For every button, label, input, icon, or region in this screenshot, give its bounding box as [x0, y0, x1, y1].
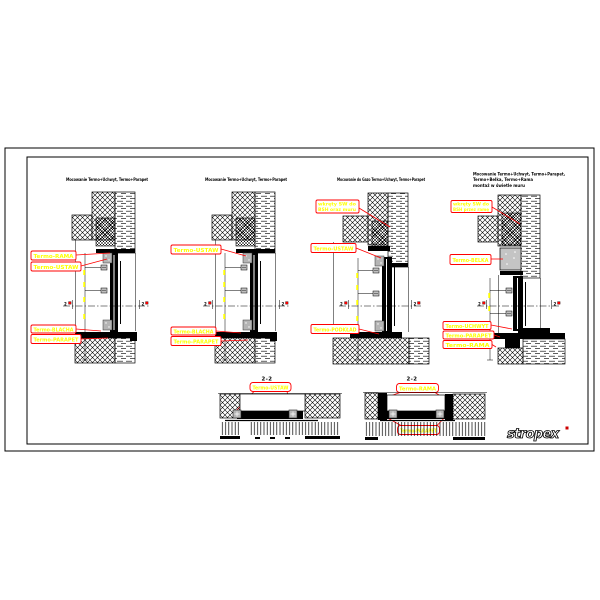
frame-anchor — [289, 410, 297, 418]
frame-anchor — [389, 410, 397, 418]
mount-bracket — [103, 320, 112, 330]
callout-label: wkręty SW do — [453, 202, 489, 207]
logo-text: stropex — [507, 427, 560, 442]
mount-clip — [373, 291, 379, 296]
section-a-title: 2-2 — [262, 377, 273, 383]
mount-bracket — [375, 321, 384, 331]
callout-label: BSH oraz muru — [318, 207, 356, 212]
callout-label: Termo-USTAW — [174, 248, 220, 254]
page-background — [0, 0, 600, 600]
detail-4-title: montaż w świetle muru — [473, 183, 525, 188]
logo-trademark — [566, 427, 569, 430]
callout-label: Termo-USTAW — [34, 265, 80, 271]
section-b-title: 2-2 — [407, 377, 418, 383]
callout-label: wkręty SW do — [318, 201, 356, 206]
callout-label: Termo-PARAPET — [34, 338, 80, 344]
detail-3-title: Mocowanie do Gazo Termo+Uchwyt, Termo+Pa… — [337, 177, 426, 183]
mount-clip — [241, 265, 247, 270]
mount-clip — [506, 288, 512, 293]
svg-text:2: 2 — [204, 301, 207, 306]
mount-clip — [101, 265, 107, 270]
svg-text:2: 2 — [64, 301, 67, 306]
callout-label: Termo-PARAPET — [174, 340, 220, 346]
callout-label: Termo-RAMA — [34, 254, 74, 260]
svg-text:2: 2 — [282, 301, 285, 306]
detail-4-title: Mocowanie Termo+Uchwyt, Termo+Parapet, — [473, 172, 565, 177]
callout-label: BSH przez ramę — [453, 207, 489, 212]
callout-label: Termo-USTAW — [314, 247, 355, 253]
callout-label: Termo-PODKŁAD — [314, 328, 357, 334]
detail-2-title: Mocowanie Termo+Uchwyt, Termo+Parapet — [205, 177, 288, 183]
svg-text:2: 2 — [554, 301, 557, 306]
detail-4-title: Termo+Belka, Termo+Rama — [473, 177, 533, 182]
frame-anchor — [436, 410, 444, 418]
callout-label: Termo-USTAW — [253, 386, 290, 392]
callout-label: Termo-UCHWYT — [446, 324, 490, 330]
callout-label: Termo-RAMA — [446, 343, 490, 349]
mount-bracket — [243, 253, 252, 263]
svg-text:2: 2 — [478, 301, 481, 306]
svg-text:2: 2 — [340, 301, 343, 306]
mount-bracket — [243, 320, 252, 330]
svg-text:2: 2 — [414, 301, 417, 306]
mount-bracket — [103, 253, 112, 263]
mount-clip — [241, 288, 247, 293]
callout-label: Termo-BLACHA — [174, 330, 214, 336]
callout-label: Termo-RAMA — [399, 387, 436, 393]
termo-belka-block — [500, 248, 521, 270]
technical-drawing: Mocowanie Termo+Uchwyt, Termo+Parapet 2 … — [0, 0, 600, 600]
frame-anchor — [233, 410, 241, 418]
mount-clip — [506, 311, 512, 316]
callout-label: Termo-BELKA — [453, 258, 489, 264]
callout-label: Termo-BLACHA — [34, 328, 74, 334]
mount-clip — [373, 268, 379, 273]
detail-1-title: Mocowanie Termo+Uchwyt, Termo+Parapet — [66, 177, 149, 183]
mount-clip — [101, 288, 107, 293]
svg-text:2: 2 — [142, 301, 145, 306]
callout-label: Termo-PARAPET — [446, 334, 493, 340]
